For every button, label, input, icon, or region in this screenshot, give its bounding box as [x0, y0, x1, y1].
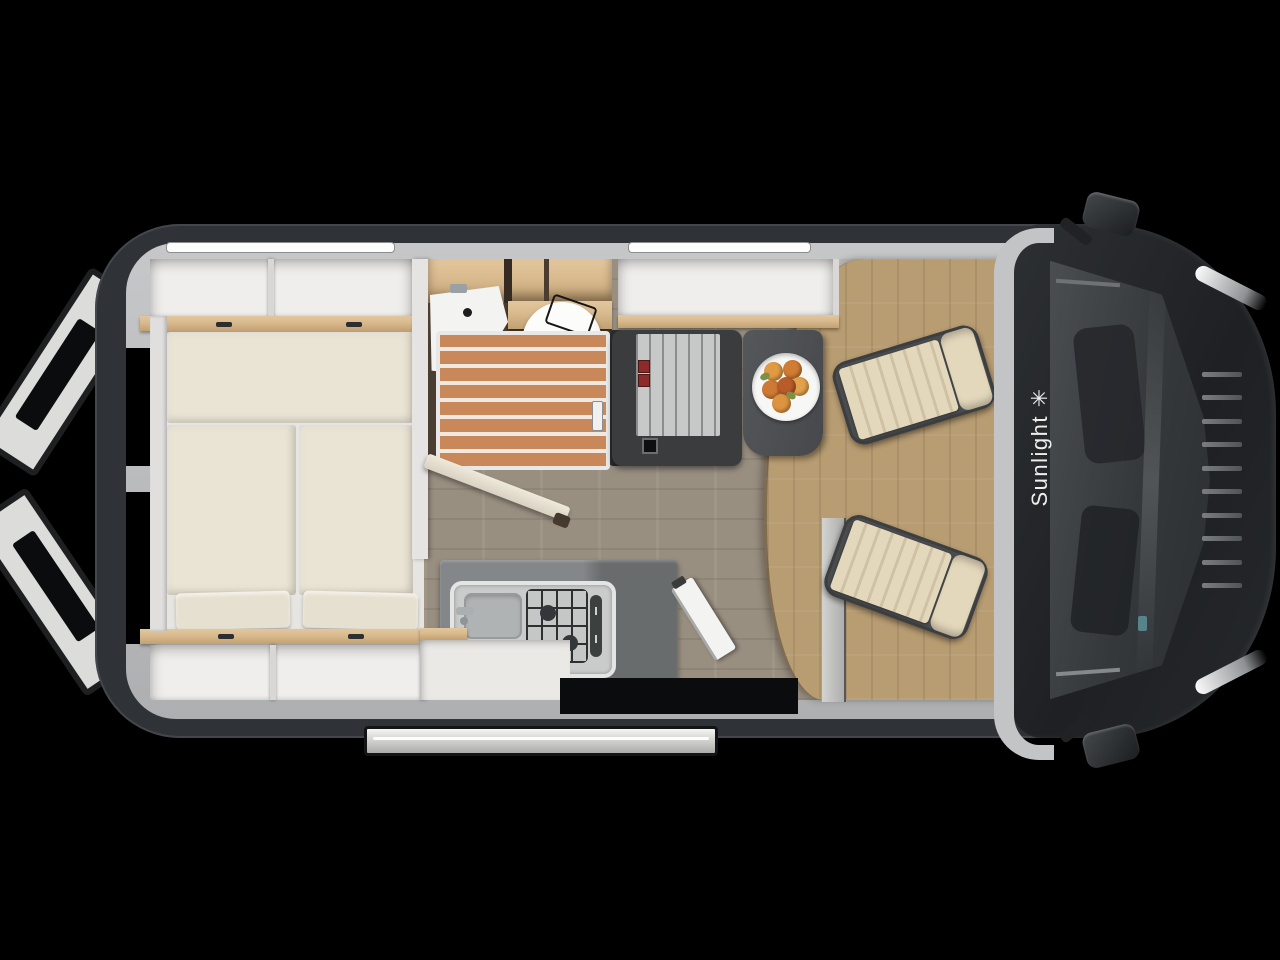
grille-bar: [1202, 442, 1242, 447]
sun-logo-icon: ✳: [1027, 387, 1052, 407]
cabinet-divider: [268, 259, 274, 317]
bed-shelf-bottom: [140, 629, 465, 644]
grille-bar: [1202, 583, 1242, 588]
brand-logo: Sunlight ✳: [1027, 362, 1053, 532]
seatbelt-buckle: [638, 374, 650, 387]
bed-side-wall: [150, 316, 167, 631]
seatbelt-buckle: [638, 360, 650, 373]
entry-step-well: [560, 678, 798, 714]
brand-name: Sunlight: [1027, 415, 1052, 507]
grille-bar: [1202, 419, 1242, 424]
entry-step: [364, 726, 718, 756]
dash-indicator-glint: [1138, 616, 1147, 631]
shelf-handle: [348, 634, 364, 639]
bed-backrest-right: [303, 591, 419, 631]
floorplan-stage: Sunlight ✳: [0, 0, 1280, 960]
grille-bar: [1202, 513, 1242, 518]
rear-door-bottom-window: [12, 530, 100, 642]
glass-reflection: [1072, 324, 1147, 465]
rear-door-top-window: [15, 318, 101, 431]
shelf-handle: [346, 322, 362, 327]
overhead-cabinet-rear-top: [150, 259, 412, 317]
roof-light-strip-rear: [166, 242, 395, 253]
entry-step-highlight: [373, 737, 709, 740]
grille-bar: [1202, 466, 1242, 471]
kitchen-sink-bowl: [464, 593, 522, 639]
dinette-bench: [612, 330, 742, 466]
control-mark: [595, 635, 597, 643]
sink-faucet: [450, 284, 467, 293]
sink-drain: [463, 308, 472, 317]
shower-door-handle: [592, 401, 603, 431]
cabinet-divider: [544, 259, 549, 303]
bed-mattress-top: [167, 332, 413, 423]
cabinet-divider: [504, 259, 512, 303]
grille-bar: [1202, 372, 1242, 377]
kitchen-faucet: [456, 607, 474, 615]
hob-control-panel: [590, 595, 602, 657]
grille-bar: [1202, 489, 1242, 494]
shelf-handle: [218, 634, 234, 639]
grille-bar: [1202, 395, 1242, 400]
grille-bar: [1202, 560, 1242, 565]
control-mark: [595, 607, 597, 615]
hob-burner: [540, 605, 556, 621]
shelf-handle: [216, 322, 232, 327]
kitchen-cabinet-front: [420, 640, 570, 700]
bed-shelf-top: [140, 316, 422, 331]
grille-bar: [1202, 536, 1242, 541]
front-grille: [1202, 372, 1242, 588]
bed-backrest-left: [176, 591, 291, 631]
glass-reflection: [1069, 504, 1140, 636]
bench-foot: [642, 438, 658, 454]
wiper: [1056, 279, 1120, 287]
kitchen-shelf-flap: [420, 628, 467, 640]
bed-mattress-left: [167, 425, 296, 595]
dinette-cabinet-edge: [618, 315, 839, 328]
bed-mattress-right: [299, 425, 413, 595]
kitchen-faucet-knob: [460, 617, 468, 625]
fruit-plate: [752, 353, 820, 421]
shower-floor: [436, 331, 610, 470]
bathroom-wall: [412, 259, 428, 559]
overhead-cabinet-dinette: [618, 259, 839, 315]
cabinet-divider: [270, 645, 276, 700]
roof-light-strip-mid: [628, 242, 811, 253]
wiper: [1056, 668, 1120, 676]
